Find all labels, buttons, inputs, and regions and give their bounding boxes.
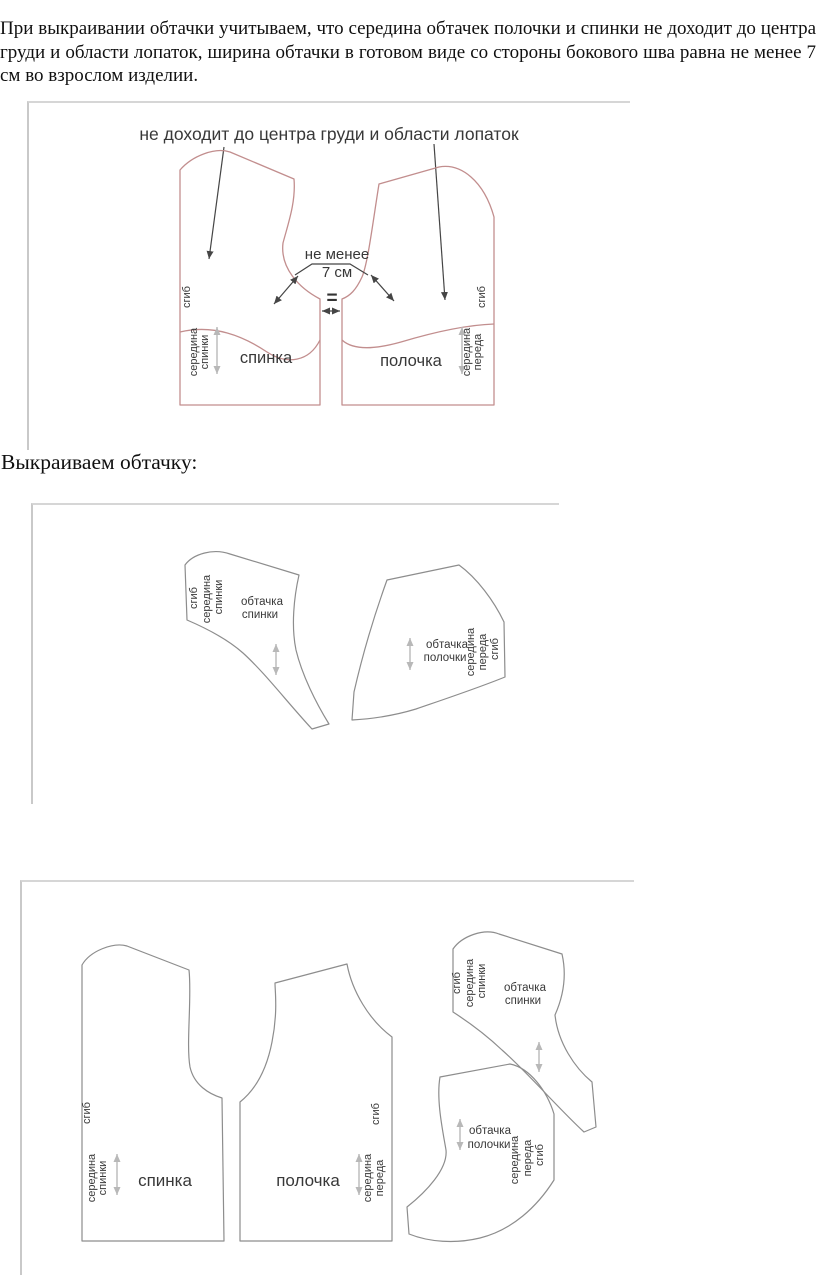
section-heading: Выкраиваем обтачку: <box>1 450 197 475</box>
back-facing-center-line1: середина <box>201 574 213 623</box>
back-facing-fold-label: сгиб <box>451 972 463 994</box>
back-facing-name-line1: обтачка <box>241 596 284 608</box>
back-facing-name-line2: спинки <box>242 609 278 621</box>
figure-caption: не доходит до центра груди и области лоп… <box>139 124 519 144</box>
front-piece-name: полочка <box>276 1171 340 1190</box>
back-piece-outline <box>82 945 224 1241</box>
facing-pieces-drawing: сгиб середина спинки обтачка спинки обта… <box>33 505 559 804</box>
front-facing-center-line1: середина <box>465 627 477 676</box>
front-center-label-line2: переда <box>472 333 484 370</box>
front-center-line2: переда <box>374 1159 386 1196</box>
min-width-note-line2: 7 см <box>322 264 352 281</box>
back-facing-center-line1: середина <box>464 958 476 1007</box>
intro-paragraph: При выкраивании обтачки учитываем, что с… <box>0 17 816 88</box>
front-center-line1: середина <box>362 1153 374 1202</box>
back-facing-center-line2: спинки <box>476 964 488 999</box>
caption-leader-left <box>209 147 224 259</box>
figure-all-pieces: сгиб середина спинки спинка сгиб середин… <box>20 880 634 1275</box>
figure-facing-pieces: сгиб середина спинки обтачка спинки обта… <box>31 503 559 804</box>
front-fold-label: сгиб <box>476 286 488 308</box>
back-facing-name-line2: спинки <box>505 995 541 1007</box>
front-facing-center-line2: переда <box>477 633 489 670</box>
front-facing-name-line2: полочки <box>424 652 467 664</box>
front-facing-name-line2: полочки <box>468 1139 511 1151</box>
facing-scheme-drawing: не доходит до центра груди и области лоп… <box>29 103 630 450</box>
back-center-label-line2: спинки <box>199 335 211 370</box>
back-fold-label: сгиб <box>81 1102 93 1124</box>
front-facing-fold-label: сгиб <box>489 638 501 660</box>
back-facing-name-line1: обтачка <box>504 982 547 994</box>
min-width-note-line1: не менее <box>305 246 369 263</box>
back-piece-name: спинка <box>240 349 293 367</box>
front-piece-name: полочка <box>380 352 443 370</box>
front-facing-center-line1: середина <box>509 1135 521 1184</box>
front-facing-name-line1: обтачка <box>469 1125 512 1137</box>
back-fold-label: сгиб <box>181 286 193 308</box>
front-facing-fold-label: сгиб <box>534 1144 546 1166</box>
measure-arrow-left <box>274 276 298 304</box>
front-fold-label: сгиб <box>370 1103 382 1125</box>
all-pieces-drawing: сгиб середина спинки спинка сгиб середин… <box>22 882 634 1275</box>
front-facing-center-line2: переда <box>522 1139 534 1176</box>
back-piece-name: спинка <box>138 1171 192 1190</box>
front-facing-name-line1: обтачка <box>426 639 469 651</box>
figure-facing-scheme: не доходит до центра груди и области лоп… <box>27 101 630 450</box>
back-facing-fold-label: сгиб <box>188 587 200 609</box>
back-facing-center-line2: спинки <box>213 580 225 615</box>
equal-width-sign: = <box>326 288 337 309</box>
measure-arrow-right <box>371 275 394 301</box>
back-center-line2: спинки <box>97 1161 109 1196</box>
